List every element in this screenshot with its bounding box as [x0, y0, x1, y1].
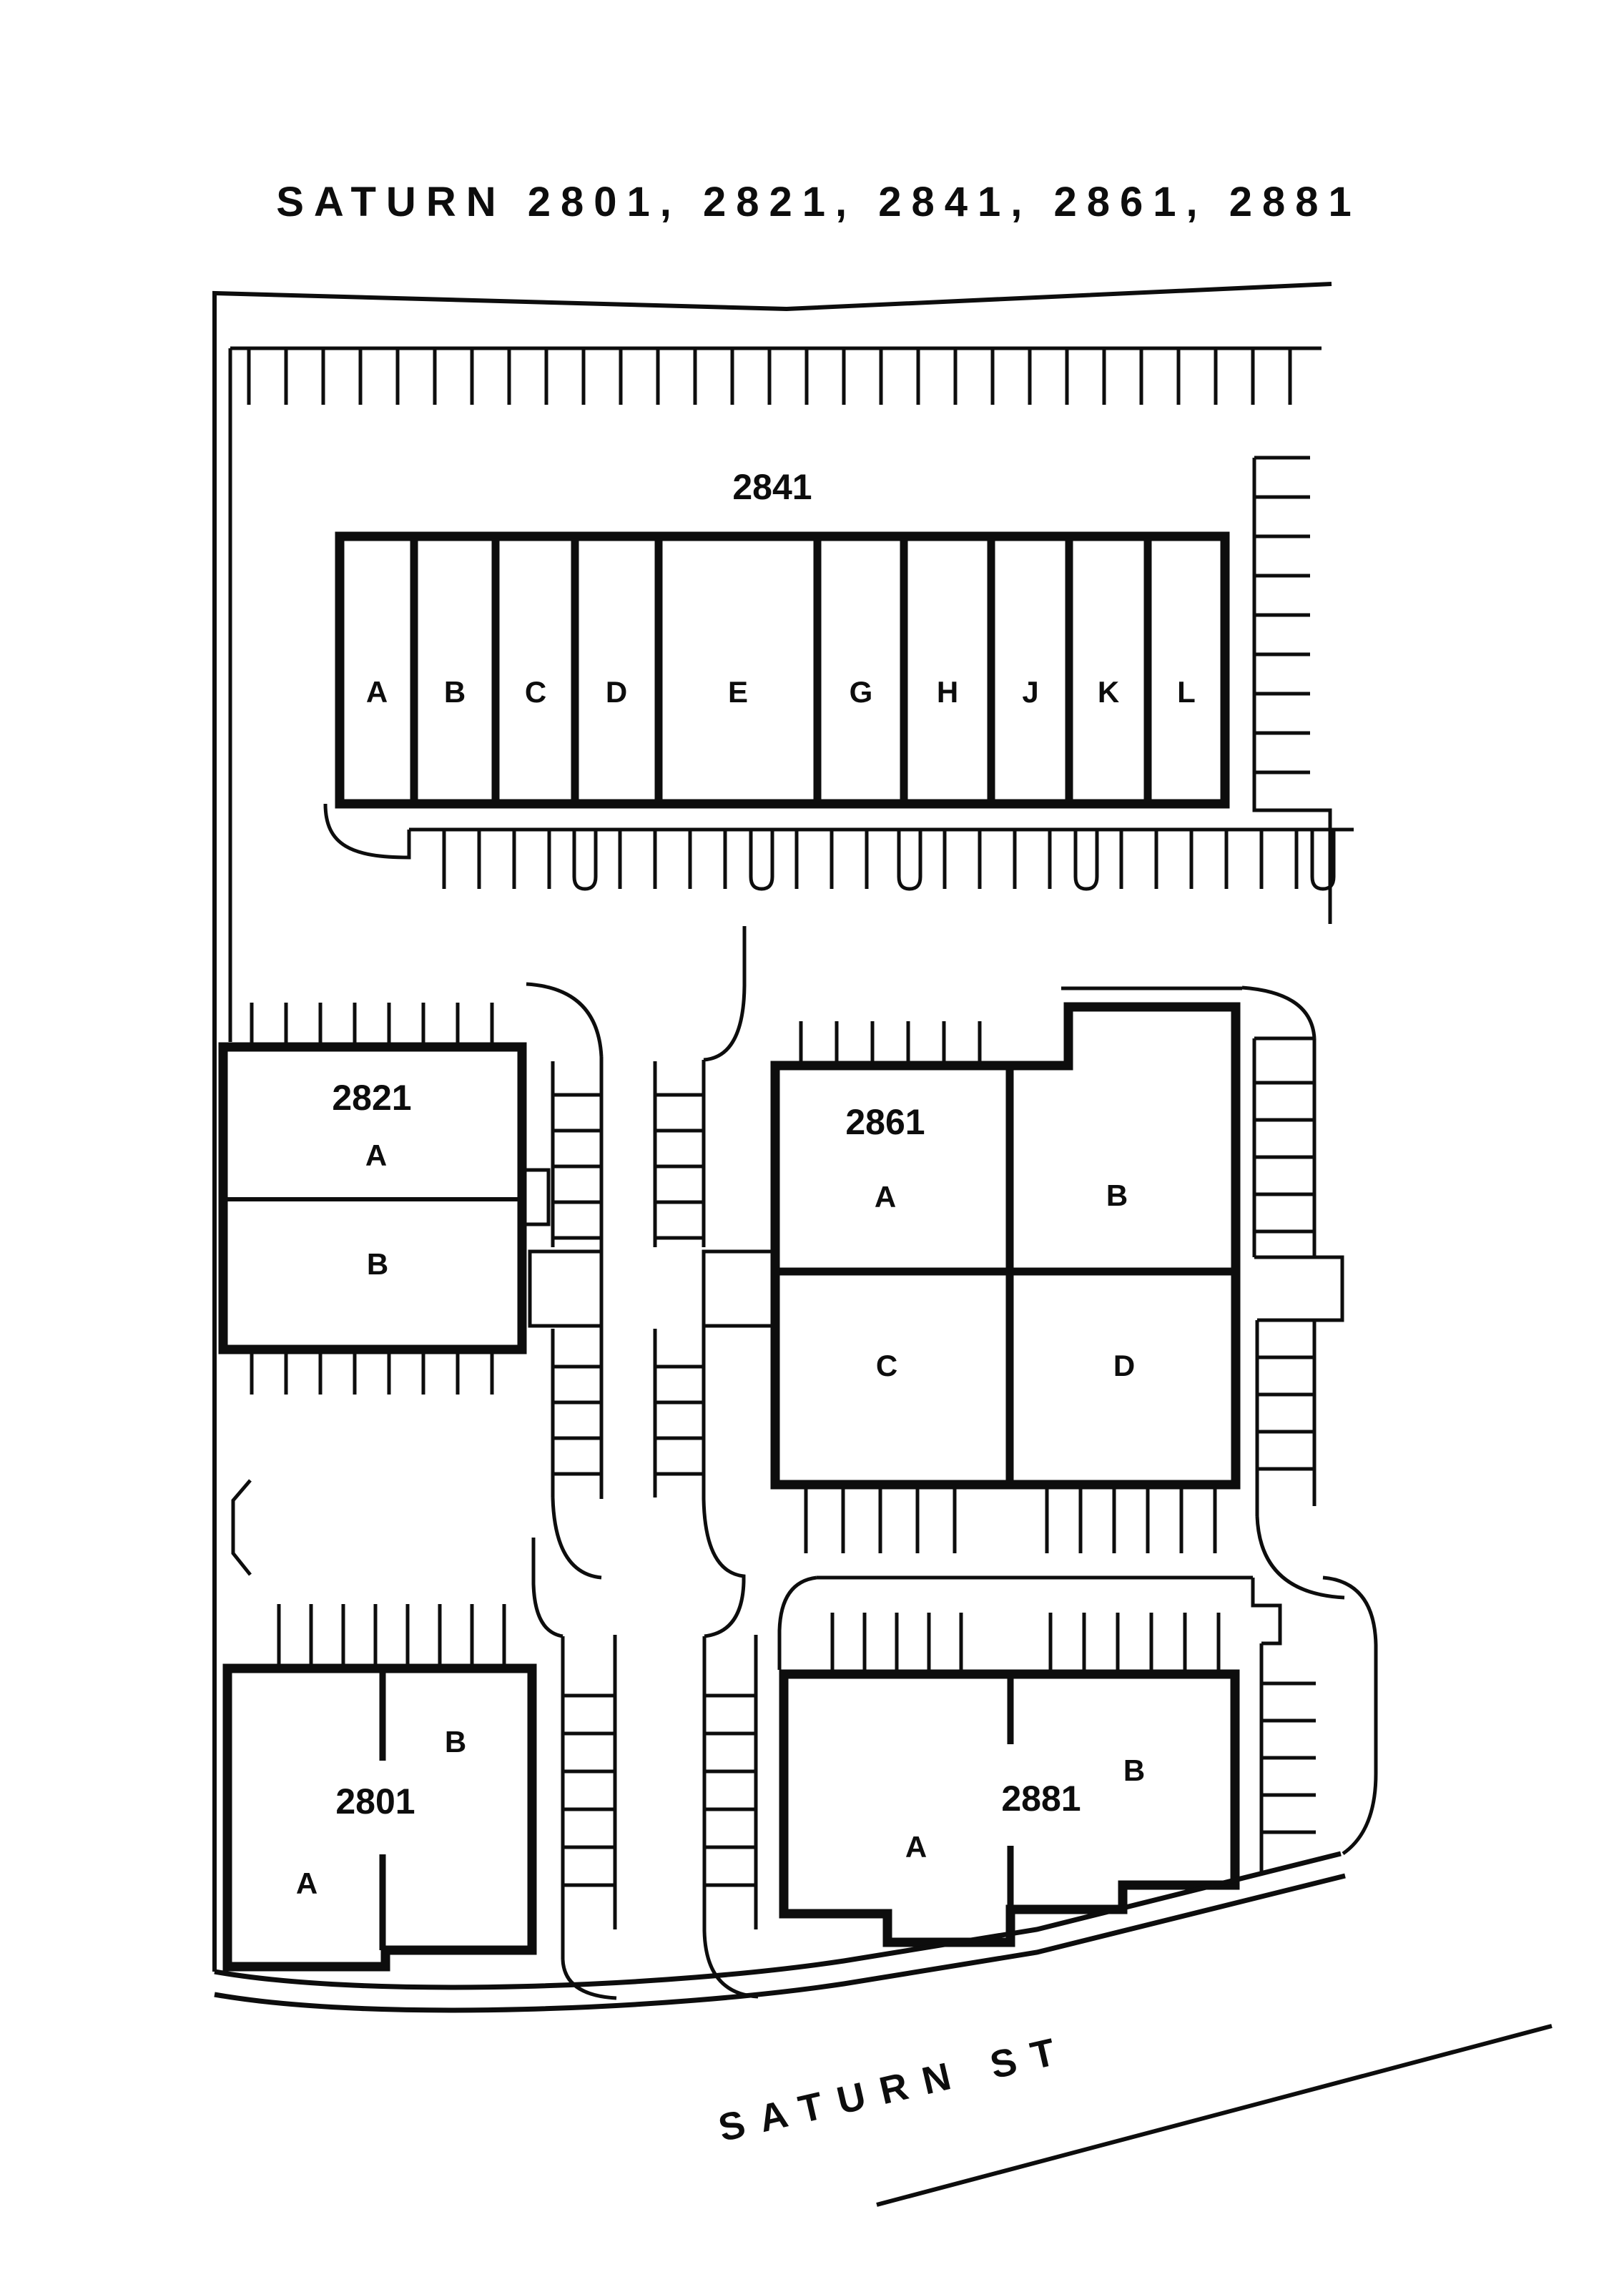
site-plan-page: SATURN 2801, 2821, 2841, 2861, 2881 2841…	[0, 0, 1624, 2277]
stall-ticks	[1261, 1683, 1316, 1832]
building-2841: 2841 A B C D E G H J K L	[340, 467, 1225, 804]
island-top-fillet-left	[533, 1538, 563, 1636]
island-bottom-fillet-right	[704, 1931, 758, 1997]
stall-ticks	[1254, 1038, 1314, 1231]
unit-label-2841-l: L	[1177, 675, 1196, 709]
stall-ticks	[655, 1367, 704, 1474]
stall-ticks	[1257, 1357, 1314, 1469]
stall-ticks	[553, 1095, 601, 1238]
unit-label-2841-b: B	[444, 675, 466, 709]
stall-edges-lower	[1257, 1320, 1314, 1516]
parking-edge	[1254, 458, 1330, 924]
unit-label-2801-b: B	[445, 1725, 466, 1759]
parking-stall-ticks	[444, 830, 1296, 889]
parking-stall-ticks	[1254, 458, 1310, 772]
edge-notch	[1253, 1578, 1280, 1643]
island-top-fillet-right	[704, 926, 744, 1060]
unit-label-2841-d: D	[606, 675, 627, 709]
curb-fillet	[325, 804, 409, 857]
building-number-2821: 2821	[332, 1078, 411, 1118]
edge-notch	[1254, 1257, 1342, 1320]
building-number-2801: 2801	[335, 1781, 415, 1821]
building-number-2881: 2881	[1001, 1779, 1081, 1819]
building-2841-unit-dividers	[414, 536, 1148, 804]
unit-label-2861-d: D	[1113, 1349, 1135, 1382]
island-pad-left	[530, 1251, 601, 1326]
west-curb-chevron	[233, 1480, 250, 1575]
site-plan-drawing: SATURN 2801, 2821, 2841, 2861, 2881 2841…	[0, 0, 1624, 2277]
unit-label-2881-a: A	[905, 1830, 927, 1864]
unit-label-2841-a: A	[366, 675, 388, 709]
building-2861-unit-dividers	[775, 1066, 1236, 1485]
parking-south-of-2841	[325, 804, 1354, 889]
parking-east-of-2861	[1242, 988, 1344, 1598]
top-fillet	[1242, 988, 1314, 1038]
unit-label-2801-a: A	[296, 1867, 318, 1900]
parking-ticks-north	[801, 1021, 980, 1066]
lane-line-north	[779, 1578, 1253, 1670]
stall-edges-upper	[1254, 1038, 1314, 1257]
unit-label-2841-k: K	[1098, 675, 1119, 709]
island-bottom-fillet-left	[553, 1497, 601, 1578]
unit-label-2861-b: B	[1106, 1179, 1128, 1212]
stall-ticks	[553, 1367, 601, 1474]
stall-ticks	[563, 1696, 615, 1885]
parking-ticks-north	[252, 1003, 492, 1047]
island-edges-left	[553, 1057, 601, 1251]
stall-ticks	[655, 1095, 704, 1238]
stall-ticks	[704, 1696, 756, 1885]
unit-label-2821-b: B	[367, 1247, 388, 1281]
rounded-stall-pockets	[574, 830, 1334, 889]
parking-island-south	[533, 1538, 758, 1998]
saturn-street: SATURN ST	[215, 1854, 1552, 2205]
island-bottom-fillet-right	[704, 1499, 744, 1636]
building-2861: 2861 A B C D	[775, 988, 1242, 1553]
parking-ticks-south	[806, 1485, 1215, 1553]
parking-east-of-2881	[1253, 1578, 1376, 1872]
unit-label-2841-h: H	[937, 675, 958, 709]
unit-label-2861-c: C	[876, 1349, 897, 1382]
parking-stall-ticks	[249, 348, 1290, 405]
building-2801: 2801 A B	[227, 1604, 532, 1967]
unit-label-2881-b: B	[1123, 1754, 1145, 1787]
top-parking-row	[230, 348, 1322, 405]
page-title: SATURN 2801, 2821, 2841, 2861, 2881	[276, 179, 1362, 225]
building-2861-outline	[775, 1007, 1236, 1485]
outer-fillet	[1323, 1578, 1376, 1854]
unit-label-2821-a: A	[365, 1138, 387, 1172]
island-edges-left	[563, 1635, 615, 1959]
building-2841-outline	[340, 536, 1225, 804]
bottom-fillet	[1257, 1516, 1344, 1598]
unit-label-2841-j: J	[1022, 675, 1038, 709]
building-2821: 2821 A B	[223, 1003, 548, 1395]
unit-label-2841-g: G	[850, 675, 873, 709]
building-number-2861: 2861	[845, 1102, 925, 1142]
island-pad-right	[704, 1251, 775, 1326]
parking-ticks-north	[832, 1613, 1219, 1674]
parking-east-of-2841	[1254, 458, 1330, 924]
parking-ticks-north	[279, 1604, 504, 1668]
street-name-label: SATURN ST	[714, 2027, 1075, 2150]
building-2881: 2881 A B	[779, 1578, 1253, 1942]
building-number-2841: 2841	[732, 467, 812, 507]
island-bottom-fillet-left	[563, 1959, 616, 1998]
unit-label-2841-c: C	[525, 675, 546, 709]
parking-ticks-south	[252, 1349, 492, 1395]
island-top-fillet-left	[526, 984, 601, 1057]
parking-island-mid	[526, 926, 775, 1636]
island-edges-right	[655, 1060, 704, 1247]
unit-label-2841-e: E	[728, 675, 748, 709]
unit-label-2861-a: A	[875, 1180, 896, 1214]
